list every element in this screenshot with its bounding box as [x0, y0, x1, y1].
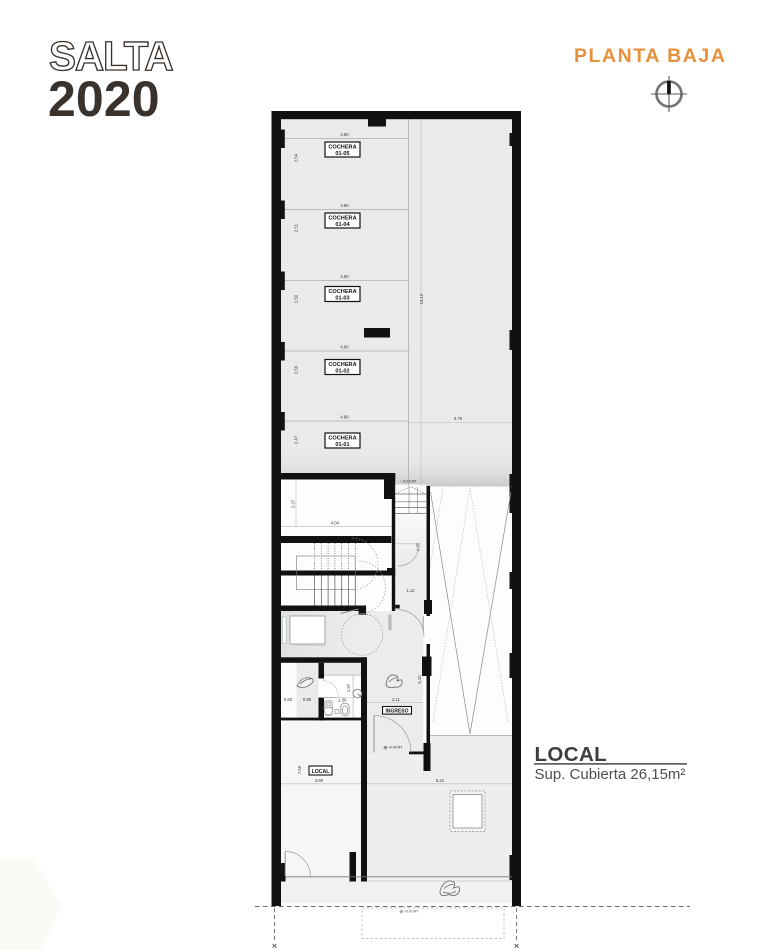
svg-text:1.12: 1.12: [406, 588, 415, 593]
svg-text:5.21: 5.21: [436, 778, 445, 783]
svg-text:2020: 2020: [48, 71, 160, 127]
svg-text:13.10: 13.10: [419, 293, 424, 304]
svg-text:2.11: 2.11: [392, 697, 401, 702]
svg-text:3.76: 3.76: [454, 416, 463, 421]
svg-text:COCHERA: COCHERA: [328, 362, 356, 368]
svg-text:2.51: 2.51: [294, 223, 299, 232]
svg-text:COCHERA: COCHERA: [328, 289, 356, 295]
svg-text:4.60: 4.60: [340, 345, 349, 350]
svg-text:COCHERA: COCHERA: [328, 216, 356, 222]
svg-text:⨁ +0.00 MT: ⨁ +0.00 MT: [400, 910, 419, 914]
svg-text:2.27: 2.27: [291, 499, 296, 508]
svg-text:COCHERA: COCHERA: [328, 145, 356, 151]
svg-text:01-05: 01-05: [335, 151, 349, 157]
svg-text:PLANTA BAJA: PLANTA BAJA: [574, 45, 726, 67]
svg-text:7.65: 7.65: [297, 765, 302, 774]
svg-text:INGRESO: INGRESO: [385, 708, 408, 714]
svg-text:0.80: 0.80: [303, 697, 312, 702]
svg-text:✕: ✕: [513, 942, 519, 950]
svg-text:2.56: 2.56: [294, 365, 299, 374]
svg-text:⨁ +0.00 MT: ⨁ +0.00 MT: [384, 746, 403, 750]
svg-text:LOCAL: LOCAL: [312, 769, 331, 775]
svg-text:4.60: 4.60: [340, 415, 349, 420]
svg-text:01-04: 01-04: [335, 222, 350, 228]
svg-text:4.60: 4.60: [340, 132, 349, 137]
svg-text:1.97: 1.97: [346, 683, 351, 692]
svg-text:01-03: 01-03: [335, 296, 349, 302]
svg-text:1.50: 1.50: [338, 697, 347, 702]
svg-text:5.10: 5.10: [417, 675, 422, 684]
svg-text:4.35: 4.35: [415, 542, 420, 551]
svg-text:Sup. Cubierta 26,15m²: Sup. Cubierta 26,15m²: [535, 766, 686, 783]
svg-text:4.60: 4.60: [340, 203, 349, 208]
svg-text:4.60: 4.60: [340, 274, 349, 279]
svg-text:2.50: 2.50: [294, 294, 299, 303]
svg-text:LOCAL: LOCAL: [535, 743, 608, 766]
svg-text:2.47: 2.47: [294, 435, 299, 444]
svg-text:01-02: 01-02: [335, 369, 349, 375]
svg-text:✕: ✕: [271, 942, 277, 950]
svg-text:4.04: 4.04: [331, 520, 340, 525]
svg-text:↑ +0.15 MT: ↑ +0.15 MT: [399, 480, 416, 484]
svg-text:3.90: 3.90: [315, 778, 324, 783]
svg-text:COCHERA: COCHERA: [328, 436, 356, 442]
svg-text:0.60: 0.60: [284, 697, 293, 702]
svg-text:2.54: 2.54: [294, 153, 299, 162]
svg-text:01-01: 01-01: [335, 442, 349, 448]
